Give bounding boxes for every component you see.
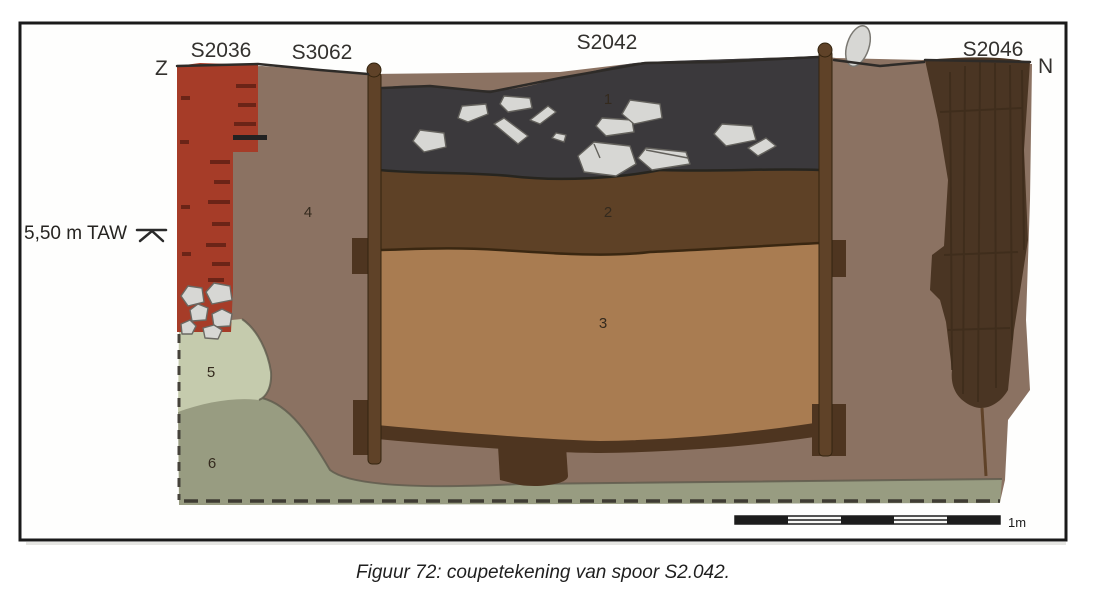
label-s2042: S2042 [577, 31, 638, 54]
brick-course-line [233, 135, 267, 140]
figure-caption: Figuur 72: coupetekening van spoor S2.04… [356, 562, 730, 583]
scale-label: 1m [1008, 515, 1026, 530]
brick-joint [180, 140, 189, 144]
wood-post-left [368, 72, 381, 464]
scale-segment [841, 516, 894, 524]
brick-joint [212, 262, 230, 266]
label-s2046: S2046 [963, 38, 1024, 61]
layer-3-fill [380, 243, 820, 444]
grain-line [995, 63, 996, 388]
wood-post-right [819, 50, 832, 456]
scale-segment [735, 516, 788, 524]
figure-page: Z N S2036 S3062 S2042 S2046 5,50 m TAW 1… [0, 0, 1100, 603]
brick-joint [206, 243, 226, 247]
label-s2036: S2036 [191, 39, 252, 62]
post-knob [367, 63, 381, 77]
brick-joint [181, 205, 190, 209]
plank-stub [832, 240, 846, 277]
brick-joint [212, 222, 230, 226]
scale-segment [947, 516, 1000, 524]
brick-joint [234, 122, 256, 126]
taw-elevation-label: 5,50 m TAW [24, 223, 127, 244]
orientation-label-z: Z [155, 57, 168, 80]
label-s3062: S3062 [292, 41, 353, 64]
brick-joint [210, 160, 230, 164]
layer-number-3: 3 [599, 315, 607, 332]
layer-number-1: 1 [604, 91, 612, 108]
frame-shadow [26, 542, 1066, 545]
section-drawing: Z N S2036 S3062 S2042 S2046 5,50 m TAW 1… [0, 0, 1100, 603]
brick-joint [238, 103, 256, 107]
layer-number-5: 5 [207, 364, 215, 381]
layer-number-4: 4 [304, 204, 312, 221]
post-knob [818, 43, 832, 57]
brick-joint [208, 278, 224, 282]
layer-2-fill [380, 169, 820, 254]
brick-joint [181, 96, 190, 100]
brick-joint [214, 180, 230, 184]
plank-stub [352, 238, 369, 274]
layer-number-6: 6 [208, 455, 216, 472]
brick-joint [182, 252, 191, 256]
brick-joint [208, 200, 230, 204]
sump-block [498, 446, 568, 486]
brick-joint [236, 84, 256, 88]
orientation-label-n: N [1038, 55, 1053, 78]
layer-number-2: 2 [604, 204, 612, 221]
